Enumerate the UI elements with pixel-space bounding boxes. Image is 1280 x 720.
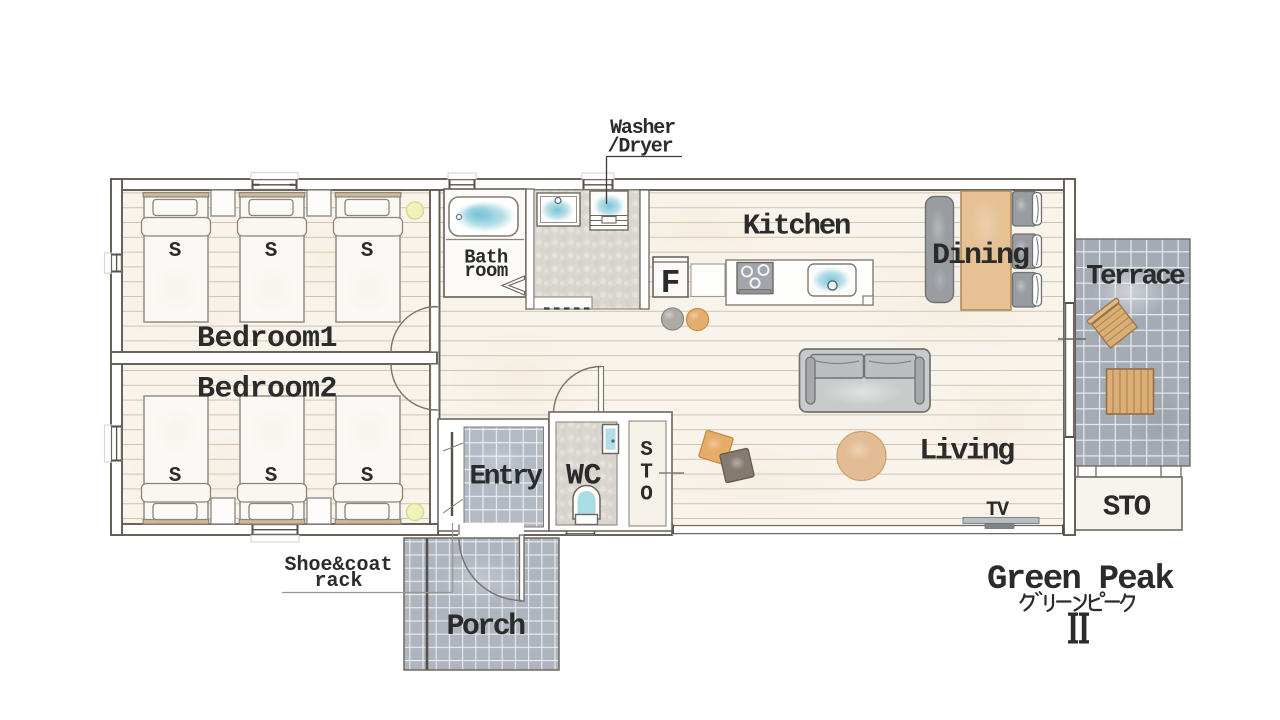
- svg-text:F: F: [661, 265, 681, 302]
- svg-text:S: S: [361, 240, 374, 263]
- svg-text:WC: WC: [566, 460, 602, 494]
- svg-text:Kitchen: Kitchen: [743, 210, 850, 243]
- svg-text:S: S: [361, 465, 374, 488]
- svg-text:Porch: Porch: [446, 610, 525, 644]
- svg-text:Bedroom1: Bedroom1: [197, 322, 337, 356]
- svg-text:Living: Living: [919, 435, 1014, 469]
- svg-text:room: room: [464, 260, 508, 282]
- svg-text:STO: STO: [1103, 491, 1151, 524]
- svg-text:Terrace: Terrace: [1086, 262, 1185, 293]
- svg-text:S: S: [169, 465, 182, 488]
- svg-text:Green Peak: Green Peak: [987, 561, 1174, 599]
- svg-text:T: T: [640, 462, 653, 485]
- svg-text:Entry: Entry: [469, 462, 543, 493]
- svg-text:TV: TV: [986, 499, 1009, 522]
- svg-text:Dining: Dining: [932, 239, 1029, 273]
- svg-text:S: S: [640, 439, 653, 462]
- svg-text:/Dryer: /Dryer: [608, 136, 673, 159]
- svg-text:rack: rack: [314, 570, 362, 593]
- svg-text:O: O: [640, 484, 653, 507]
- svg-text:S: S: [265, 465, 278, 488]
- svg-text:S: S: [265, 240, 278, 263]
- svg-text:S: S: [169, 240, 182, 263]
- svg-text:Bedroom2: Bedroom2: [197, 373, 337, 407]
